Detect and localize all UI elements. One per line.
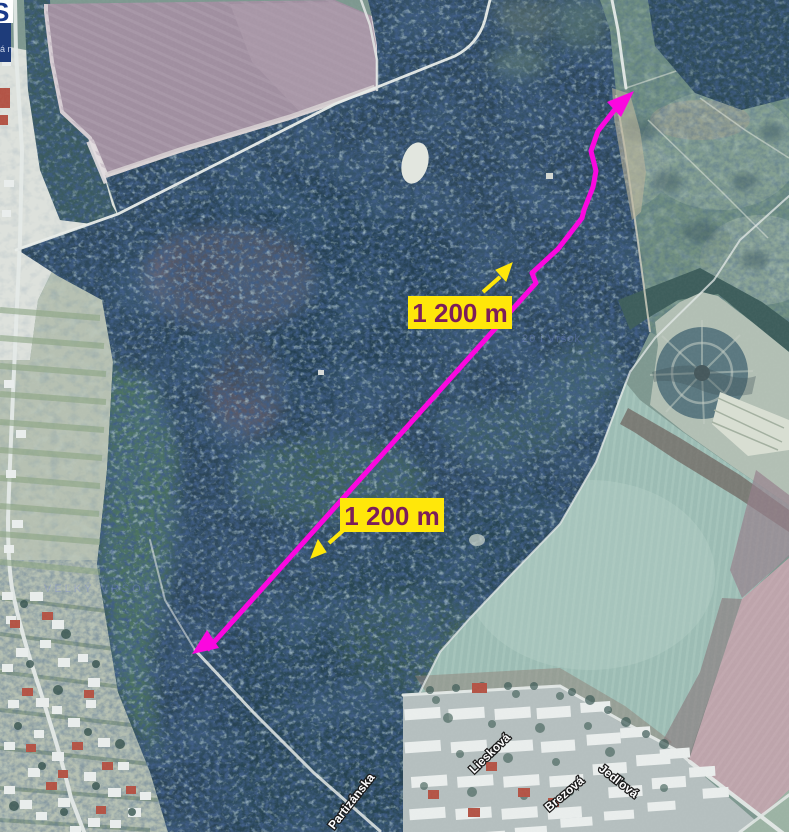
svg-text:á n: á n bbox=[0, 44, 13, 54]
svg-text:1 200 m: 1 200 m bbox=[344, 501, 439, 531]
svg-text:S: S bbox=[0, 0, 9, 27]
svg-text:1 200 m: 1 200 m bbox=[412, 298, 507, 328]
svg-text:20 i Vŕšok: 20 i Vŕšok bbox=[522, 333, 581, 345]
svg-text:VEĽKÝ VŔŠOK: VEĽKÝ VŔŠOK bbox=[44, 582, 154, 595]
